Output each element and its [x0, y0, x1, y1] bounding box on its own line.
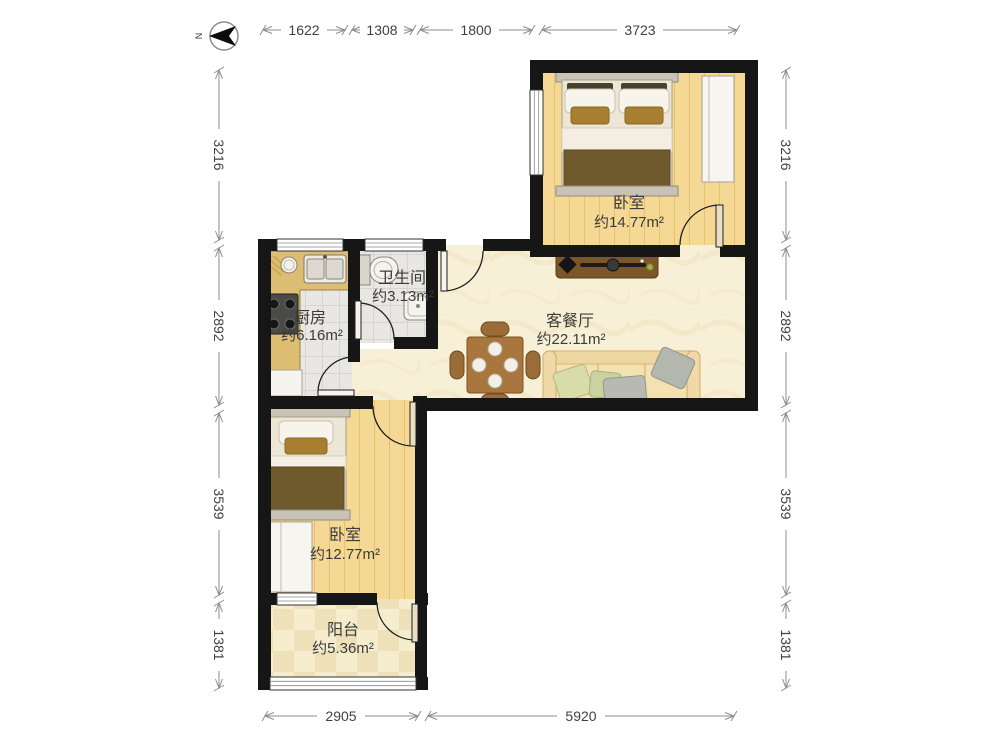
- dim-top-2: 1308: [366, 22, 397, 38]
- label-bathroom-name: 卫生间: [378, 269, 426, 287]
- label-kitchen-name: 厨房: [294, 309, 326, 327]
- dim-top-1: 1622: [288, 22, 319, 38]
- label-bedroom-second-area: 约12.77m²: [310, 546, 380, 563]
- dim-left-4: 1381: [211, 629, 227, 660]
- dim-top-4: 3723: [624, 22, 655, 38]
- label-balcony-name: 阳台: [327, 621, 359, 639]
- dim-bottom-1: 2905: [325, 708, 356, 724]
- label-bedroom-main-name: 卧室: [613, 194, 645, 212]
- dim-right-1: 3216: [778, 139, 794, 170]
- kitchen-sink-icon: [304, 255, 346, 283]
- dim-right-3: 3539: [778, 488, 794, 519]
- dimension-right: 3216 2892 3539 1381: [777, 67, 795, 691]
- window-bathroom: [365, 239, 423, 251]
- label-bedroom-second-name: 卧室: [329, 526, 361, 544]
- window-kitchen: [277, 239, 343, 251]
- compass: N: [194, 22, 238, 50]
- dim-left-2: 2892: [211, 310, 227, 341]
- floor-plan-page: 卧室 约14.77m² 卫生间 约3.13m² 厨房 约6.16m² 客餐厅 约…: [0, 0, 1000, 750]
- wardrobe-icon-second: [266, 522, 312, 592]
- dim-left-1: 3216: [211, 139, 227, 170]
- window-balcony: [270, 677, 416, 690]
- label-bathroom-area: 约3.13m²: [372, 288, 434, 305]
- dim-left-3: 3539: [211, 488, 227, 519]
- window-bedroom-main: [530, 90, 543, 175]
- compass-north-label: N: [194, 33, 204, 40]
- dim-right-4: 1381: [778, 629, 794, 660]
- dimension-bottom: 2905 5920: [262, 707, 737, 724]
- window-bedroom-balcony: [277, 593, 317, 605]
- label-kitchen-area: 约6.16m²: [281, 327, 343, 344]
- dim-bottom-2: 5920: [565, 708, 596, 724]
- pot-icon: [281, 257, 297, 273]
- single-bed-icon: [264, 406, 350, 520]
- label-living-area: 约22.11m²: [537, 331, 606, 348]
- dim-right-2: 2892: [778, 310, 794, 341]
- label-balcony-area: 约5.36m²: [312, 640, 374, 657]
- floor-plan: 卧室 约14.77m² 卫生间 约3.13m² 厨房 约6.16m² 客餐厅 约…: [0, 0, 1000, 750]
- dimension-left: 3216 2892 3539 1381: [210, 67, 228, 691]
- label-bedroom-main-area: 约14.77m²: [594, 214, 664, 231]
- dim-top-3: 1800: [460, 22, 491, 38]
- sofa-icon: [543, 346, 700, 407]
- double-bed-icon: [556, 70, 678, 196]
- label-living-name: 客餐厅: [546, 312, 594, 330]
- wardrobe-icon-main: [702, 76, 734, 182]
- dimension-top: 1622 1308 1800 3723: [260, 21, 740, 38]
